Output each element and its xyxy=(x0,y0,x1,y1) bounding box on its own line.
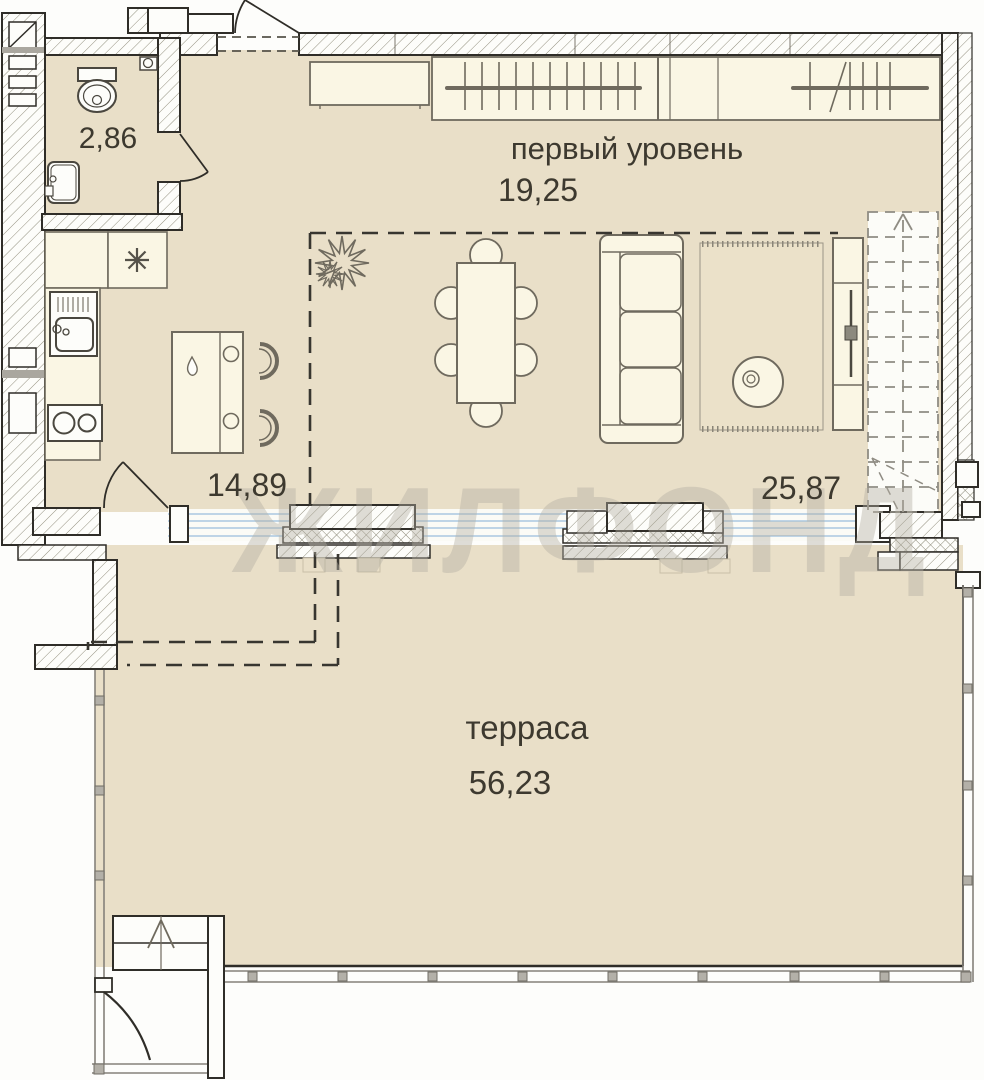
floorplan-canvas: ЖИЛФОНД 2,86 первый уровень 19,25 14,89 … xyxy=(0,0,984,1080)
wardrobe-icon xyxy=(432,57,940,120)
terrace-area-label: 56,23 xyxy=(469,764,552,801)
boiler-icon xyxy=(140,57,157,70)
terrace-name-label: терраса xyxy=(465,709,589,746)
bathroom-area-label: 2,86 xyxy=(79,122,137,155)
terrace-steps xyxy=(113,916,208,970)
kitchen-area-label: 14,89 xyxy=(207,467,287,503)
kitchen-sink-icon xyxy=(50,292,97,356)
dining-table-icon xyxy=(457,263,515,403)
coffee-table-icon xyxy=(733,357,783,407)
tv-stand-icon xyxy=(833,238,863,430)
stove-icon xyxy=(48,405,102,441)
washbasin-icon xyxy=(45,162,79,203)
first-level-area-label: 19,25 xyxy=(498,172,578,208)
bench xyxy=(310,62,429,105)
toilet-icon xyxy=(78,68,116,112)
floorplan-screenshot: ЖИЛФОНД 2,86 первый уровень 19,25 14,89 … xyxy=(0,0,984,1080)
sofa-icon xyxy=(600,235,683,443)
gate-leaf xyxy=(104,992,150,1060)
asterisk-icon xyxy=(125,248,149,272)
living-area-label: 25,87 xyxy=(761,470,841,506)
first-level-name-label: первый уровень xyxy=(511,131,743,166)
kitchen-island xyxy=(172,332,243,453)
